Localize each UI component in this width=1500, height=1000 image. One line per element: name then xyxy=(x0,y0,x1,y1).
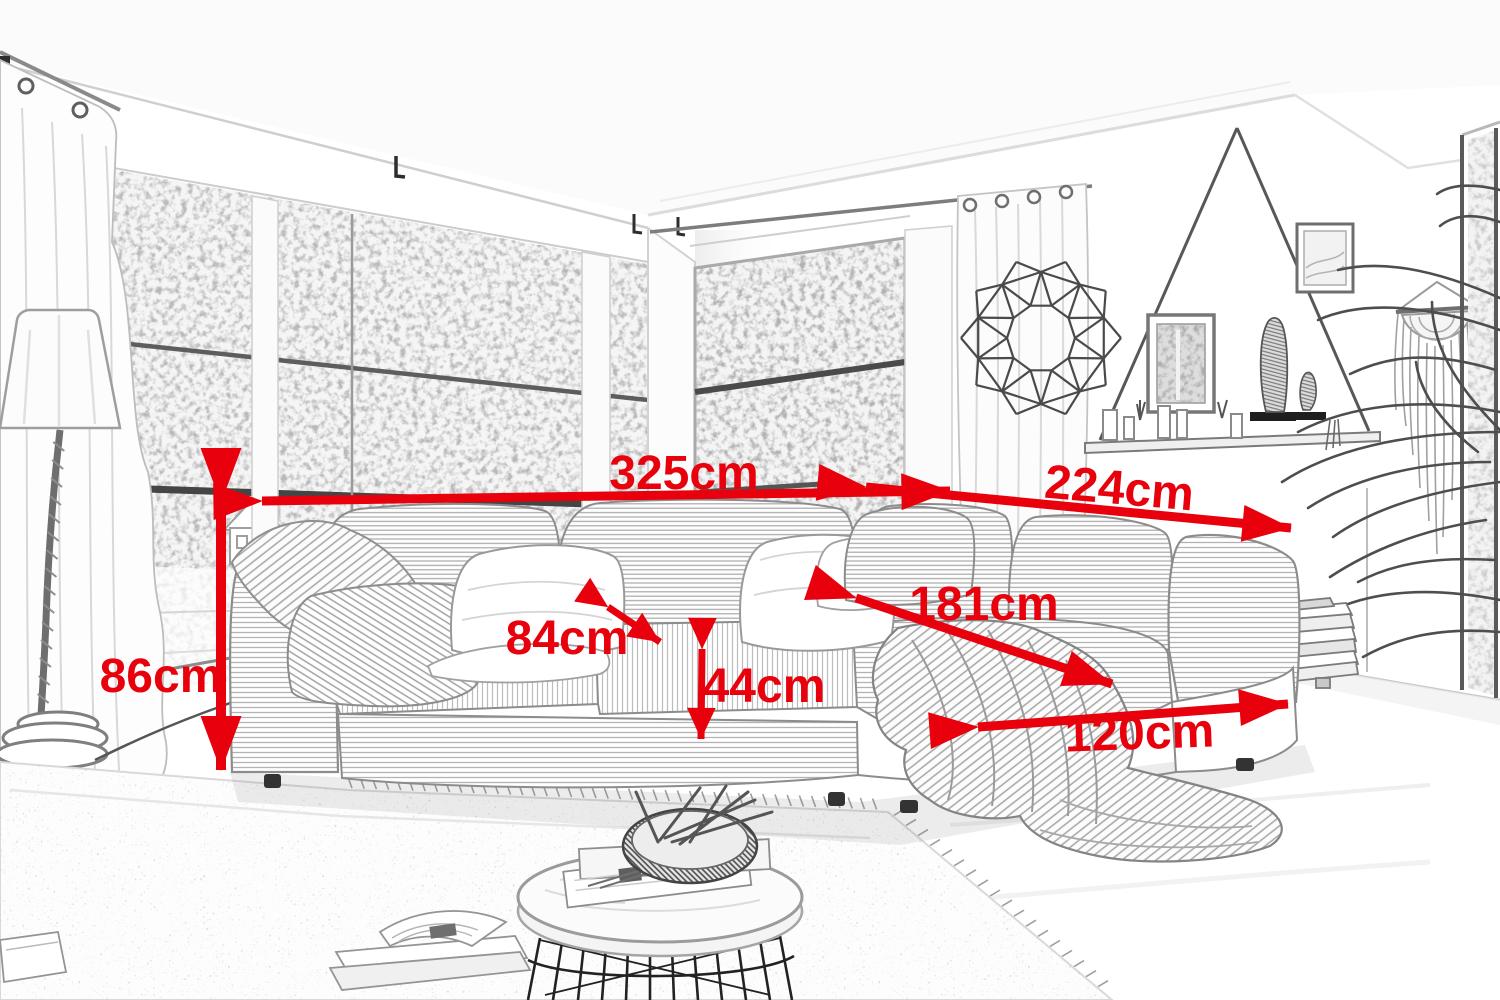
sculpture-base xyxy=(1250,412,1296,421)
wood-sculpture-tall xyxy=(1261,318,1288,412)
sculpture-base xyxy=(1292,412,1326,420)
plant-sprig xyxy=(1137,400,1145,420)
framed-picture-wall xyxy=(1297,224,1353,292)
sofa-foot xyxy=(900,800,918,813)
sofa-foot xyxy=(1236,758,1254,771)
wood-sculpture-small xyxy=(1300,372,1316,410)
label-back-height: 86cm xyxy=(100,650,223,703)
sofa-foot xyxy=(828,792,845,806)
plant-sprig xyxy=(1218,400,1227,418)
label-chaise-length: 181cm xyxy=(909,578,1058,631)
sketch-scene: 325cm 224cm 86cm 84cm 44cm 181cm 120cm xyxy=(0,0,1500,1000)
label-seat-height: 44cm xyxy=(703,660,826,713)
label-seat-depth: 84cm xyxy=(506,612,629,665)
product-dimension-image: 325cm 224cm 86cm 84cm 44cm 181cm 120cm xyxy=(0,0,1500,1000)
macrame-wall-hanging xyxy=(1395,282,1478,554)
label-total-width: 325cm xyxy=(609,447,758,500)
ceiling xyxy=(0,0,1500,215)
sofa-base xyxy=(338,714,858,787)
wall-corner-edge xyxy=(1295,95,1462,168)
label-chaise-width: 120cm xyxy=(1064,704,1215,762)
sofa-foot xyxy=(264,774,281,788)
